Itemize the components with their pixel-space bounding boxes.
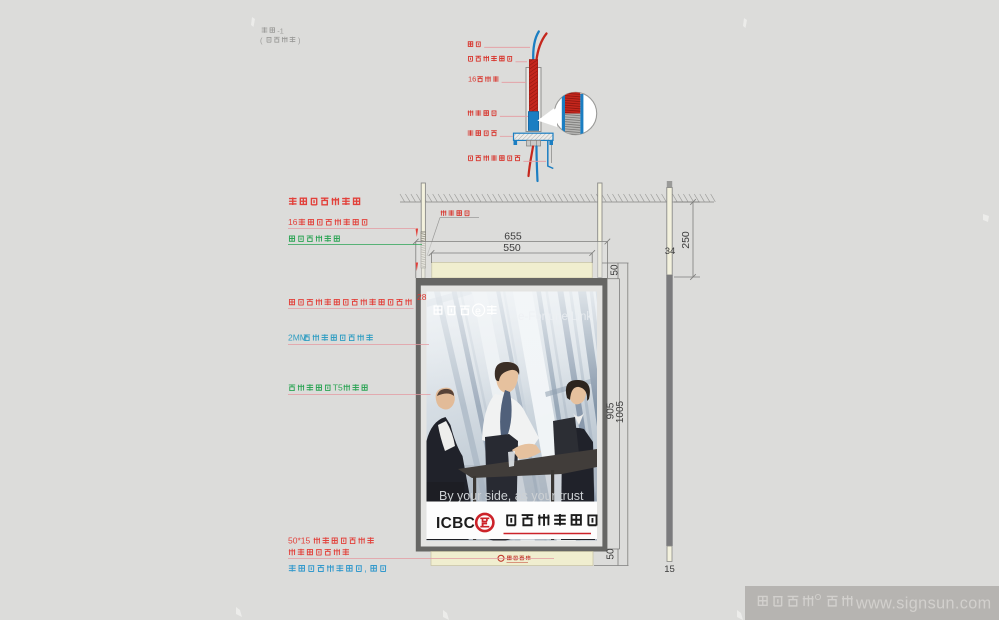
svg-text:15: 15 — [664, 564, 675, 575]
svg-text:50: 50 — [610, 264, 621, 276]
svg-text:ICBC: ICBC — [436, 515, 475, 532]
svg-text:16: 16 — [288, 217, 298, 227]
svg-text:www.signsun.com: www.signsun.com — [855, 595, 992, 613]
svg-text:e-Fortune Link: e-Fortune Link — [518, 311, 592, 323]
svg-text:50*15: 50*15 — [288, 536, 310, 546]
svg-text:28: 28 — [417, 292, 427, 302]
svg-text:50: 50 — [606, 548, 617, 560]
svg-text:T5: T5 — [333, 383, 343, 393]
svg-text:,: , — [364, 564, 367, 574]
svg-text:By your side, as your trust: By your side, as your trust — [439, 489, 584, 503]
svg-text:655: 655 — [504, 231, 522, 243]
svg-text:-1: -1 — [277, 27, 284, 36]
svg-text:1005: 1005 — [615, 400, 626, 423]
svg-text:16: 16 — [468, 75, 476, 84]
svg-text:34: 34 — [665, 246, 676, 257]
svg-text:250: 250 — [680, 231, 692, 249]
svg-text:550: 550 — [503, 242, 521, 254]
svg-text:e: e — [475, 306, 481, 318]
svg-text:2MM: 2MM — [288, 333, 307, 343]
